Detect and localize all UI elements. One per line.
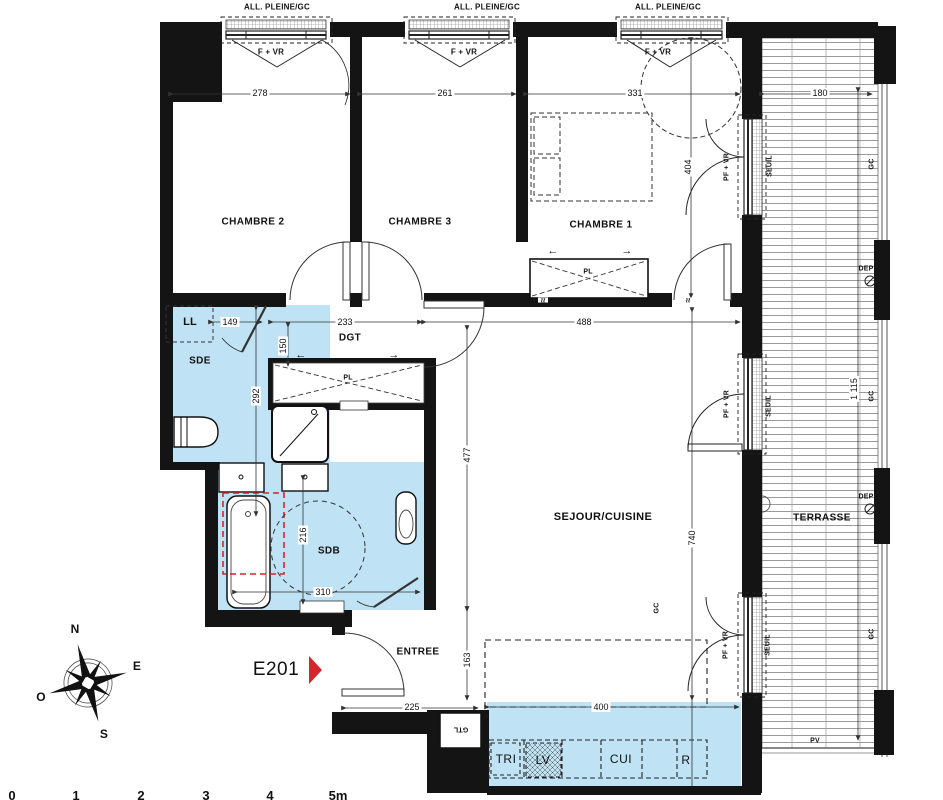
arrow-right-icon: →	[388, 349, 399, 361]
compass-s: S	[100, 727, 108, 741]
compass-rose-icon	[39, 634, 137, 732]
dim-label: 477	[462, 445, 472, 464]
dim-label: 310	[313, 587, 332, 597]
north-windows	[221, 17, 728, 105]
window-label: F + VR	[645, 48, 671, 57]
dim-label: 163	[462, 650, 472, 669]
compass-n: N	[71, 622, 80, 636]
dep-label: DEP	[859, 266, 874, 273]
room-label-sde: SDE	[189, 356, 211, 367]
dim-label: 740	[687, 528, 697, 547]
dim-label: 225	[402, 702, 421, 712]
kitchen-label-r: R	[681, 753, 690, 767]
window-label: PF + VR	[723, 631, 730, 659]
dim-label: 488	[574, 317, 593, 327]
plan-drawing	[0, 0, 943, 800]
room-label-terrasse: TERRASSE	[793, 513, 851, 524]
kitchen-label-tri: TRI	[496, 752, 517, 766]
dep-label: DEP	[859, 494, 874, 501]
closet-label: PL	[583, 269, 592, 276]
break-mark: ≈	[538, 297, 548, 302]
toilet	[396, 492, 416, 544]
kitchen-label-cui: CUI	[610, 752, 632, 766]
scale-tick: 3	[202, 788, 209, 800]
window-head-label: ALL. PLEINE/GC	[635, 3, 701, 12]
room-label-chambre3: CHAMBRE 3	[388, 217, 451, 228]
bed-dashed	[531, 38, 741, 201]
kitchen-fill	[487, 702, 741, 786]
pv-label: PV	[810, 738, 820, 745]
threshold-label: SEUIL	[767, 155, 774, 177]
gc-label: GC	[869, 629, 876, 640]
arrow-right-icon: →	[621, 245, 632, 257]
arrow-left-icon: ←	[295, 349, 306, 361]
dim-label: 149	[220, 317, 239, 327]
arrow-left-icon: ←	[547, 245, 558, 257]
room-label-entree: ENTREE	[397, 647, 440, 658]
dim-label: 233	[335, 317, 354, 327]
room-label-chambre1: CHAMBRE 1	[569, 220, 632, 231]
dim-label: 400	[591, 702, 610, 712]
break-mark: ≈	[683, 297, 693, 302]
room-label-sdb: SDB	[318, 546, 340, 557]
washing-machine-label: LL	[183, 316, 197, 328]
window-head-label: ALL. PLEINE/GC	[454, 3, 520, 12]
compass-e: E	[133, 659, 141, 673]
dim-label: 1 115	[849, 376, 859, 402]
dim-label: 331	[625, 88, 644, 98]
window-label: F + VR	[451, 48, 477, 57]
kitchen-label-lv: LV	[536, 753, 551, 767]
sink	[219, 463, 264, 492]
unit-marker-icon	[309, 656, 322, 684]
closet-label: PL	[343, 375, 352, 382]
scale-tick: 1	[72, 788, 79, 800]
window-label: F + VR	[258, 48, 284, 57]
dim-label: 150	[278, 336, 288, 355]
dim-label: 404	[683, 157, 693, 176]
scale-tick: 4	[266, 788, 273, 800]
gc-label: GC	[869, 391, 876, 402]
sink	[282, 464, 328, 491]
threshold-label: SEUIL	[766, 395, 773, 417]
window-label: PF + VR	[724, 153, 731, 181]
dim-label: 180	[810, 88, 829, 98]
room-label-dgt: DGT	[339, 333, 361, 344]
room-label-sejour: SEJOUR/CUISINE	[554, 511, 653, 523]
scale-tick: 0	[8, 788, 15, 800]
gtl-label: GTL	[454, 726, 469, 733]
gc-label: GC	[869, 159, 876, 170]
floor-plan: ALL. PLEINE/GC ALL. PLEINE/GC ALL. PLEIN…	[0, 0, 943, 800]
kitchen-zone-dashed	[485, 640, 707, 707]
dim-label: 216	[298, 525, 308, 544]
dim-label: 278	[250, 88, 269, 98]
window-head-label: ALL. PLEINE/GC	[244, 3, 310, 12]
unit-id: E201	[253, 659, 299, 681]
bathtub	[227, 496, 270, 608]
gc-label: GC	[654, 603, 661, 614]
compass-o: O	[36, 690, 46, 704]
scale-tick: 2	[137, 788, 144, 800]
threshold-label: SEUIL	[765, 634, 772, 656]
dim-label: 261	[435, 88, 454, 98]
window-label: PF + VR	[724, 390, 731, 418]
dim-label: 292	[251, 386, 261, 405]
room-label-chambre2: CHAMBRE 2	[221, 217, 284, 228]
scale-tick: 5m	[329, 788, 348, 800]
